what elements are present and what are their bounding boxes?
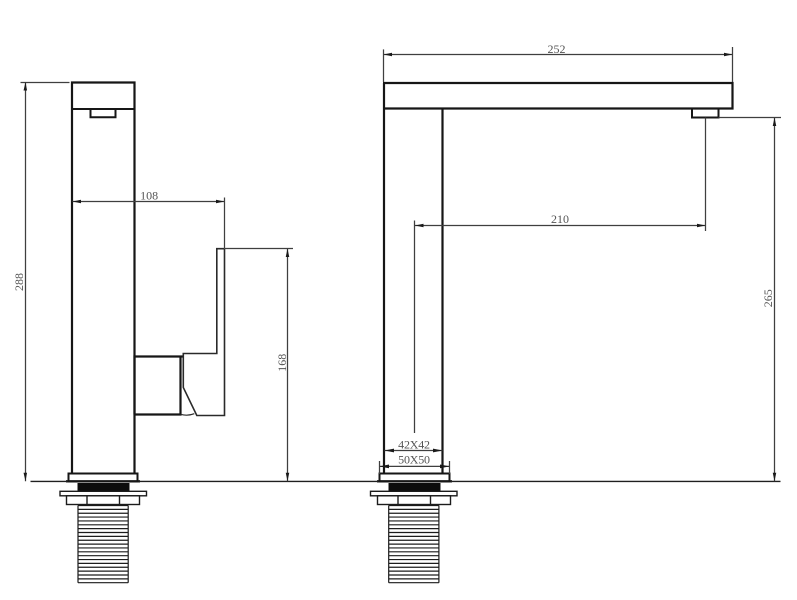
svg-text:168: 168: [275, 354, 289, 372]
svg-text:265: 265: [761, 289, 775, 307]
svg-text:50X50: 50X50: [398, 453, 430, 467]
svg-text:288: 288: [12, 273, 26, 291]
svg-text:108: 108: [140, 189, 158, 203]
svg-text:210: 210: [551, 212, 569, 226]
svg-text:252: 252: [548, 42, 566, 56]
svg-text:42X42: 42X42: [398, 438, 430, 452]
